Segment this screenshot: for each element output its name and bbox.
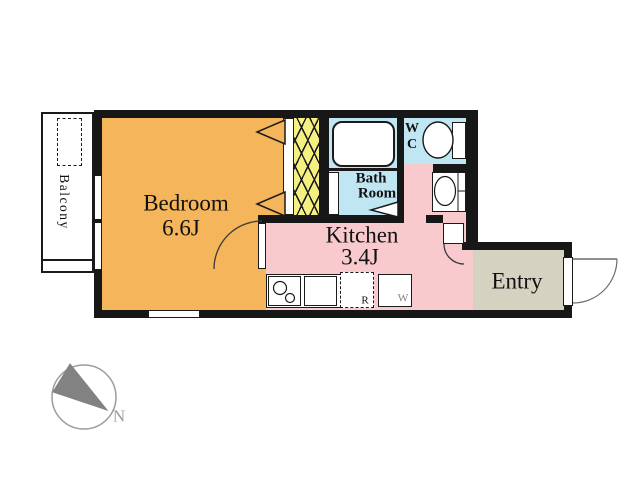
balcony-label: Balcony bbox=[57, 174, 71, 230]
refrigerator-label: R bbox=[361, 296, 368, 307]
washbasin bbox=[432, 172, 466, 212]
wall-bath-wc bbox=[397, 118, 404, 223]
kitchen-sink bbox=[304, 276, 337, 306]
bedroom-label: Bedroom bbox=[143, 192, 229, 215]
refrigerator-box bbox=[340, 272, 374, 308]
wall-north bbox=[94, 110, 478, 118]
window-south bbox=[148, 310, 200, 318]
wall-east-upper bbox=[466, 110, 478, 250]
bathroom-label-line2: Room bbox=[358, 187, 396, 202]
kitchen-entry-strip bbox=[466, 250, 473, 310]
compass bbox=[52, 364, 116, 429]
wc-label-line2: C bbox=[407, 138, 417, 152]
wall-under-washbasin bbox=[426, 215, 443, 223]
entry-door-arc bbox=[573, 259, 617, 303]
bedroom-size-label: 6.6J bbox=[162, 217, 200, 240]
closet-area bbox=[294, 118, 319, 215]
compass-needle bbox=[53, 364, 107, 410]
balcony-inner-edge bbox=[43, 259, 94, 261]
kitchen-size-label: 3.4J bbox=[341, 246, 379, 269]
toilet-tank bbox=[452, 122, 466, 159]
bathroom-label-line1: Bath bbox=[356, 172, 387, 187]
entry-door-leaf bbox=[563, 257, 573, 306]
compass-circle bbox=[52, 365, 116, 429]
window-balcony-mullion bbox=[94, 219, 102, 223]
stove bbox=[268, 276, 301, 306]
kitchen-label: Kitchen bbox=[326, 224, 399, 247]
bedroom-door-leaf bbox=[258, 223, 266, 269]
bath-step bbox=[328, 172, 339, 215]
wc-label-line1: W bbox=[405, 122, 419, 136]
bathtub bbox=[332, 121, 395, 167]
wall-entry-north bbox=[462, 242, 572, 250]
hall-door-leaf bbox=[443, 223, 464, 244]
floor-plan: Balcony Bedroom 6.6J Kitchen 3.4J Entry … bbox=[0, 0, 640, 480]
wall-wc-south bbox=[433, 164, 478, 172]
ac-unit-dashed-box bbox=[57, 118, 82, 166]
entry-label: Entry bbox=[491, 270, 542, 293]
closet-sliding-door bbox=[283, 118, 294, 215]
washer-label: W bbox=[398, 293, 409, 305]
compass-north-label: N bbox=[113, 408, 125, 425]
